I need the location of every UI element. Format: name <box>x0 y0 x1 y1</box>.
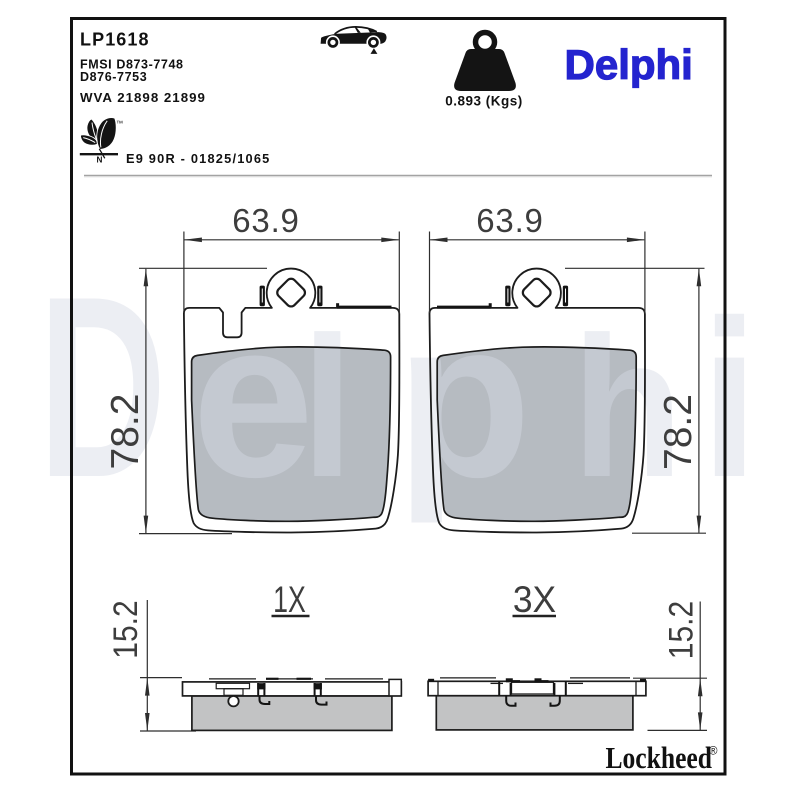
svg-text:e: e <box>192 273 314 523</box>
svg-text:i: i <box>700 274 759 524</box>
svg-text:™: ™ <box>116 121 123 128</box>
svg-text:63.9: 63.9 <box>476 202 543 239</box>
svg-text:D876-7753: D876-7753 <box>80 70 147 84</box>
svg-text:l: l <box>301 296 354 520</box>
svg-text:N: N <box>97 156 103 165</box>
svg-text:Lockheed: Lockheed <box>605 742 712 776</box>
svg-text:Delphi: Delphi <box>565 41 693 88</box>
svg-text:15.2: 15.2 <box>106 600 144 658</box>
svg-text:WVA 21898 21899: WVA 21898 21899 <box>80 90 206 105</box>
svg-text:1X: 1X <box>273 579 306 620</box>
svg-text:15.2: 15.2 <box>662 601 700 659</box>
svg-text:78.2: 78.2 <box>657 394 700 470</box>
svg-text:78.2: 78.2 <box>104 394 147 470</box>
svg-text:3X: 3X <box>513 578 556 620</box>
svg-text:E9 90R - 01825/1065: E9 90R - 01825/1065 <box>126 151 270 166</box>
svg-text:LP1618: LP1618 <box>80 29 150 49</box>
svg-text:63.9: 63.9 <box>232 202 299 239</box>
svg-text:0.893 (Kgs): 0.893 (Kgs) <box>445 93 523 108</box>
svg-text:p: p <box>396 274 531 524</box>
svg-text:®: ® <box>709 746 718 758</box>
